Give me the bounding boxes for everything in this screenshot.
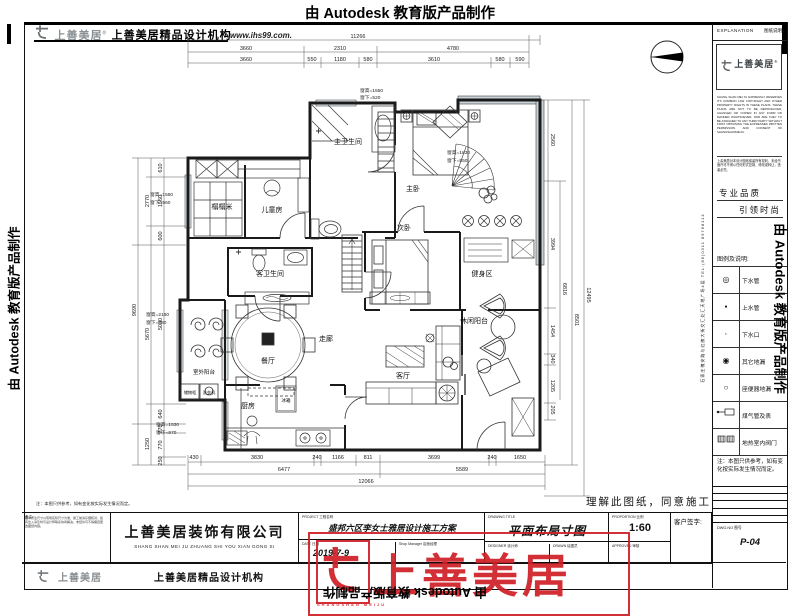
dim: 11266 [351,34,366,40]
autodesk-banner-left: 由 Autodesk 教育版产品制作 [4,199,23,419]
room-label-kitchen: 厨房 [241,401,255,410]
dim: 3610 [428,57,440,63]
win-note-2b: 窗下=550 [447,157,468,164]
north-compass-icon [651,41,683,73]
dim: 1560 [158,195,164,207]
dim: 240 [487,455,496,461]
dim: 3699 [428,455,440,461]
living-room-furniture [366,292,460,404]
exterior-window-walls [177,96,544,440]
outdoor-balcony-items [181,318,223,399]
dim: 3994 [549,238,555,250]
dim: 1180 [334,57,346,63]
dim: 3660 [240,46,252,52]
leisure-balcony-furniture [477,294,534,436]
item-label-storage: 储物柜 [184,389,197,396]
dim: 3660 [240,57,252,63]
item-label-washer: 洗衣机 [203,389,216,396]
dim: 580 [363,57,372,63]
room-label-living: 客厅 [396,371,410,380]
dim: 6816 [561,283,567,295]
dim: 5670 [145,328,151,340]
dim: 580 [495,57,504,63]
dim: 12495 [585,287,591,302]
dim: 1205 [549,380,555,392]
room-label-second: 次卧 [397,223,411,232]
room-label-corridor: 走廊 [319,334,333,343]
room-label-tatami: 榻榻米 [212,202,233,211]
dim: 2560 [549,134,555,146]
dim: 640 [158,409,164,418]
win-note-4a: 窗高=2160 [146,311,169,318]
dim: 600 [158,231,164,240]
dim: 811 [364,455,373,461]
win-note-2a: 窗高=1830 [447,149,470,156]
dim: 770 [158,440,164,449]
dim: 5030 [158,318,164,330]
dim: 205 [549,405,555,414]
room-label-mbath: 主卫生间 [334,137,362,146]
dim: 1650 [514,455,526,461]
dim: 550 [307,57,316,63]
autodesk-banner-top: 由 Autodesk 教育版产品制作 [0,2,800,23]
gym-equipment [463,216,535,263]
dim: 1166 [332,455,344,461]
dim: 590 [515,57,524,63]
win-note-1a: 窗高=1550 [360,87,383,94]
dim: 1454 [549,325,555,337]
dim: 6477 [278,467,290,473]
autodesk-banner-right: 由 Autodesk 教育版产品制作 [772,194,791,424]
autodesk-banner-bottom: 由 Autodesk 教育版产品制作 [316,584,494,603]
kitchen-fixtures [225,386,345,450]
room-label-dining: 餐厅 [261,356,275,365]
room-label-gym: 健身区 [472,269,493,278]
room-label-leisure: 休闲阳台 [460,316,488,325]
dim: 9690 [132,304,138,316]
dim: 340 [549,354,555,363]
red-stamp-watermark: 上善美居 SHANGSHAN MEIJU [308,532,630,616]
dim: 2770 [145,195,151,207]
dim: 1250 [145,438,151,450]
dim: 240 [312,455,321,461]
floor-plan-drawing: 榻榻米 儿童房 主卫生间 主卧 次卧 客卫生间 走廊 餐厅 客厅 厨房 健身区 … [0,0,800,600]
dim: 5589 [456,467,468,473]
dim: 430 [189,455,198,461]
room-label-outdoor: 室外阳台 [193,368,216,376]
dim: 3830 [251,455,263,461]
room-label-kids: 儿童房 [262,205,283,214]
room-label-master: 主卧 [406,184,420,193]
win-note-1b: 窗下=520 [360,94,381,101]
dim: 8501 [573,314,579,326]
dim: 2310 [334,46,346,52]
dim: 12066 [358,479,373,485]
room-label-gbath: 客卫生间 [256,269,284,278]
dim: 270 [158,424,164,433]
dim: 610 [158,163,164,172]
dim: 4780 [447,46,459,52]
item-label-fridge: 冰箱 [282,397,291,404]
dim: 250 [158,456,164,465]
